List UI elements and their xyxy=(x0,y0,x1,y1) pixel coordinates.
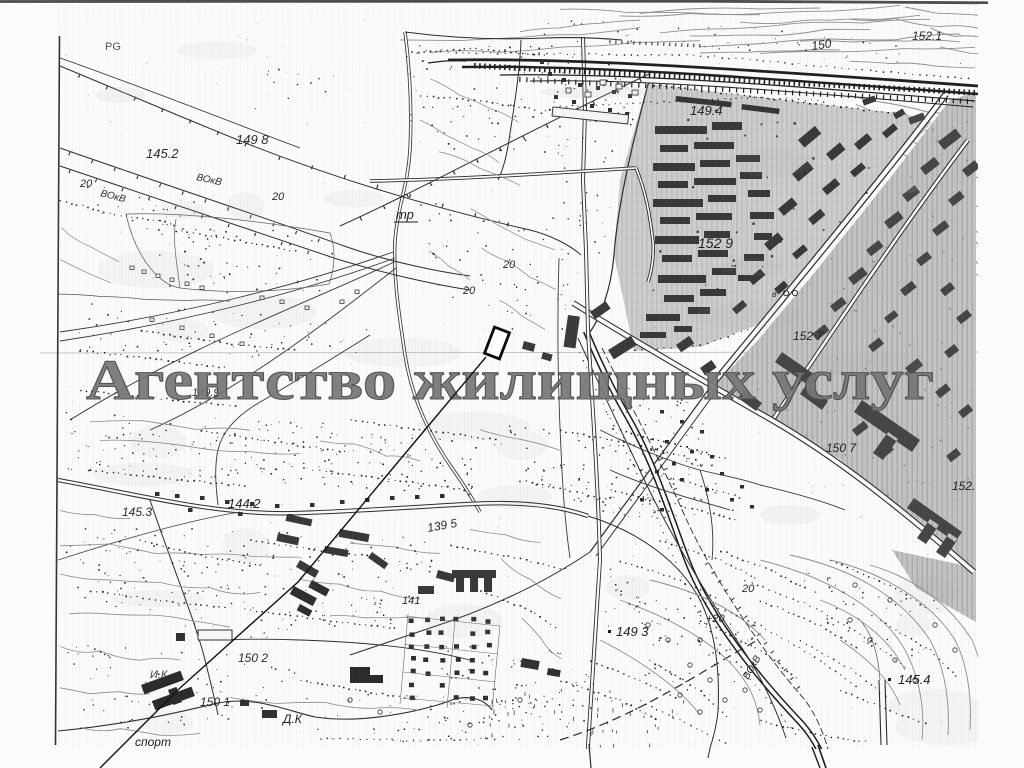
svg-text:Агентство жилищных услуг: Агентство жилищных услуг xyxy=(86,349,934,412)
